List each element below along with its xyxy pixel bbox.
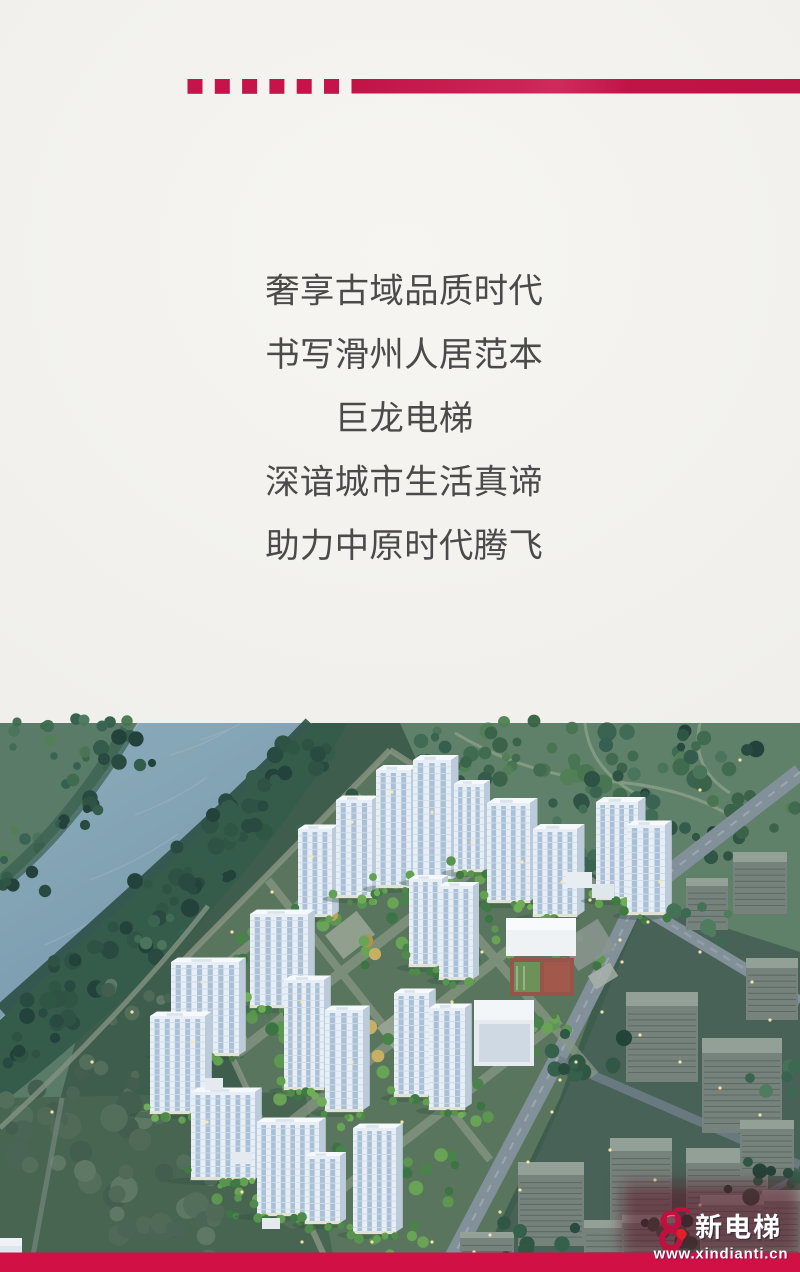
svg-text:www.xindianti.cn: www.xindianti.cn (653, 1246, 789, 1263)
